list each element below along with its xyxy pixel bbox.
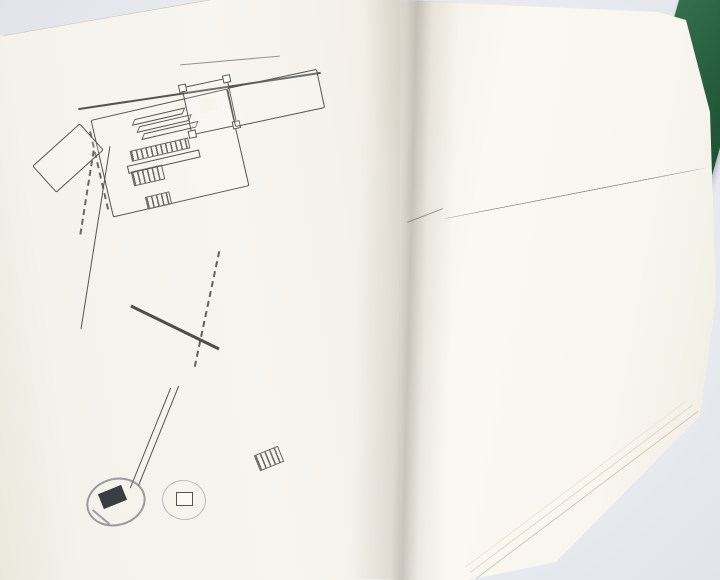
map-title bbox=[284, 138, 355, 232]
yashiro-label bbox=[198, 96, 218, 114]
spine-shadow bbox=[348, 0, 459, 580]
road-line-2 bbox=[138, 386, 179, 487]
script-text-block bbox=[467, 111, 710, 580]
road-line-1 bbox=[130, 388, 171, 489]
book-photo bbox=[0, 0, 720, 580]
street-top-line-2 bbox=[180, 56, 280, 66]
map-shrine-block bbox=[181, 78, 237, 136]
post-tr bbox=[222, 74, 231, 83]
embankment-line bbox=[81, 146, 111, 329]
map-tsutsumi-box bbox=[227, 69, 325, 127]
small-square-mark bbox=[176, 492, 193, 506]
dialogue-line bbox=[690, 151, 705, 154]
speaker-name bbox=[693, 138, 708, 141]
end-mark bbox=[581, 137, 689, 580]
page-edge-line-2 bbox=[3, 0, 210, 36]
left-page bbox=[0, 0, 400, 580]
post-bl bbox=[188, 129, 197, 138]
post-tl bbox=[178, 83, 187, 92]
stairs-hatch-3 bbox=[254, 446, 284, 472]
page-edge-line-1 bbox=[2, 0, 211, 31]
